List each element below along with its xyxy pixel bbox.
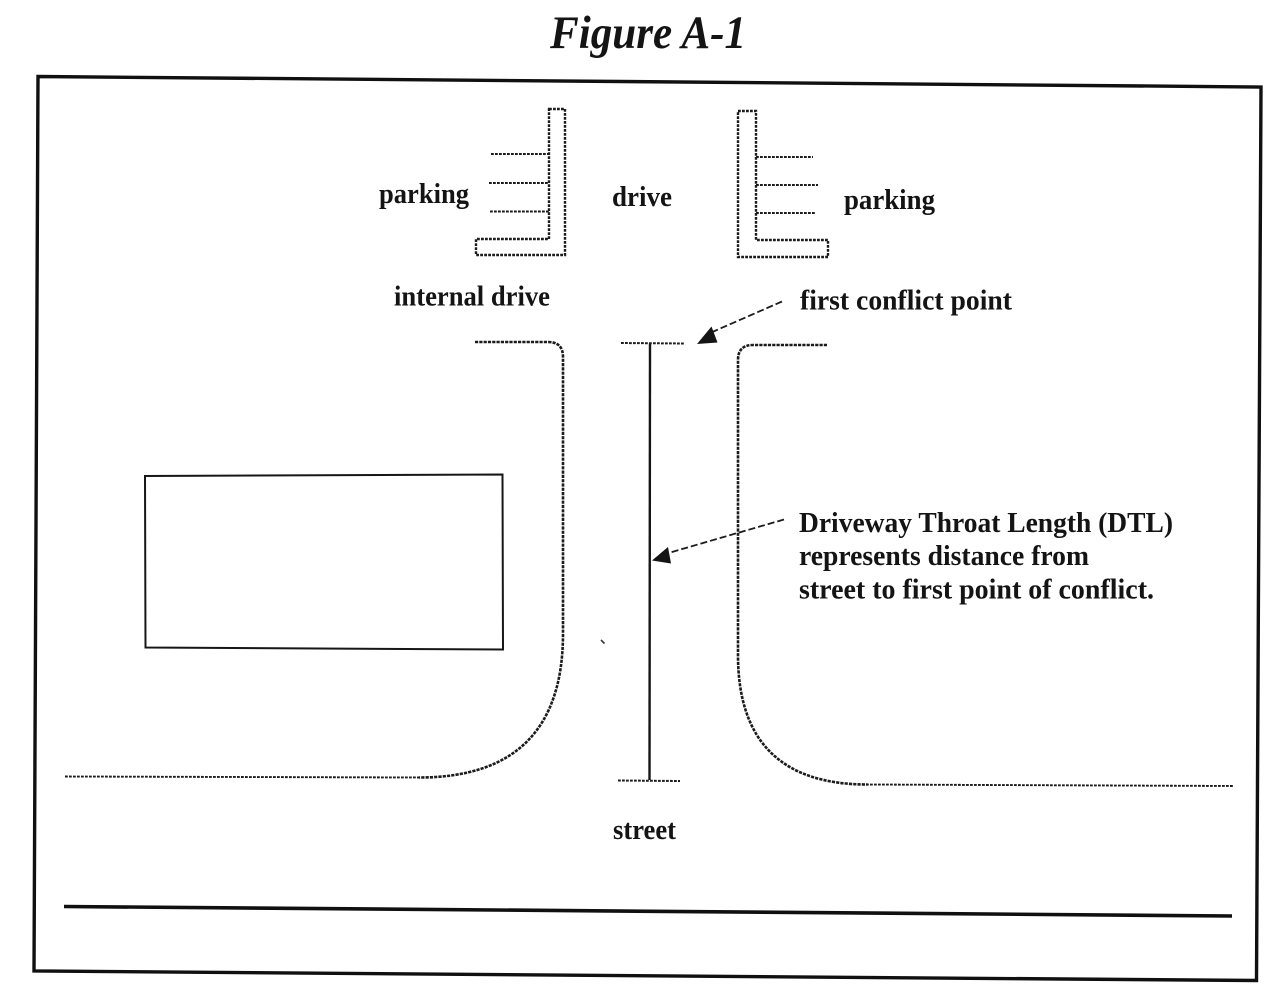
svg-text:street: street [613, 814, 676, 846]
svg-text:drive: drive [612, 181, 672, 213]
svg-text:street to first point of confl: street to first point of conflict. [799, 574, 1154, 606]
svg-text:internal drive: internal drive [394, 281, 550, 313]
svg-text:first conflict point: first conflict point [800, 285, 1012, 317]
svg-text:Figure A-1: Figure A-1 [549, 7, 746, 59]
svg-text:Driveway Throat Length (DTL): Driveway Throat Length (DTL) [799, 507, 1173, 539]
svg-text:parking: parking [844, 184, 935, 216]
svg-text:parking: parking [379, 178, 469, 210]
svg-text:represents distance from: represents distance from [799, 540, 1089, 572]
